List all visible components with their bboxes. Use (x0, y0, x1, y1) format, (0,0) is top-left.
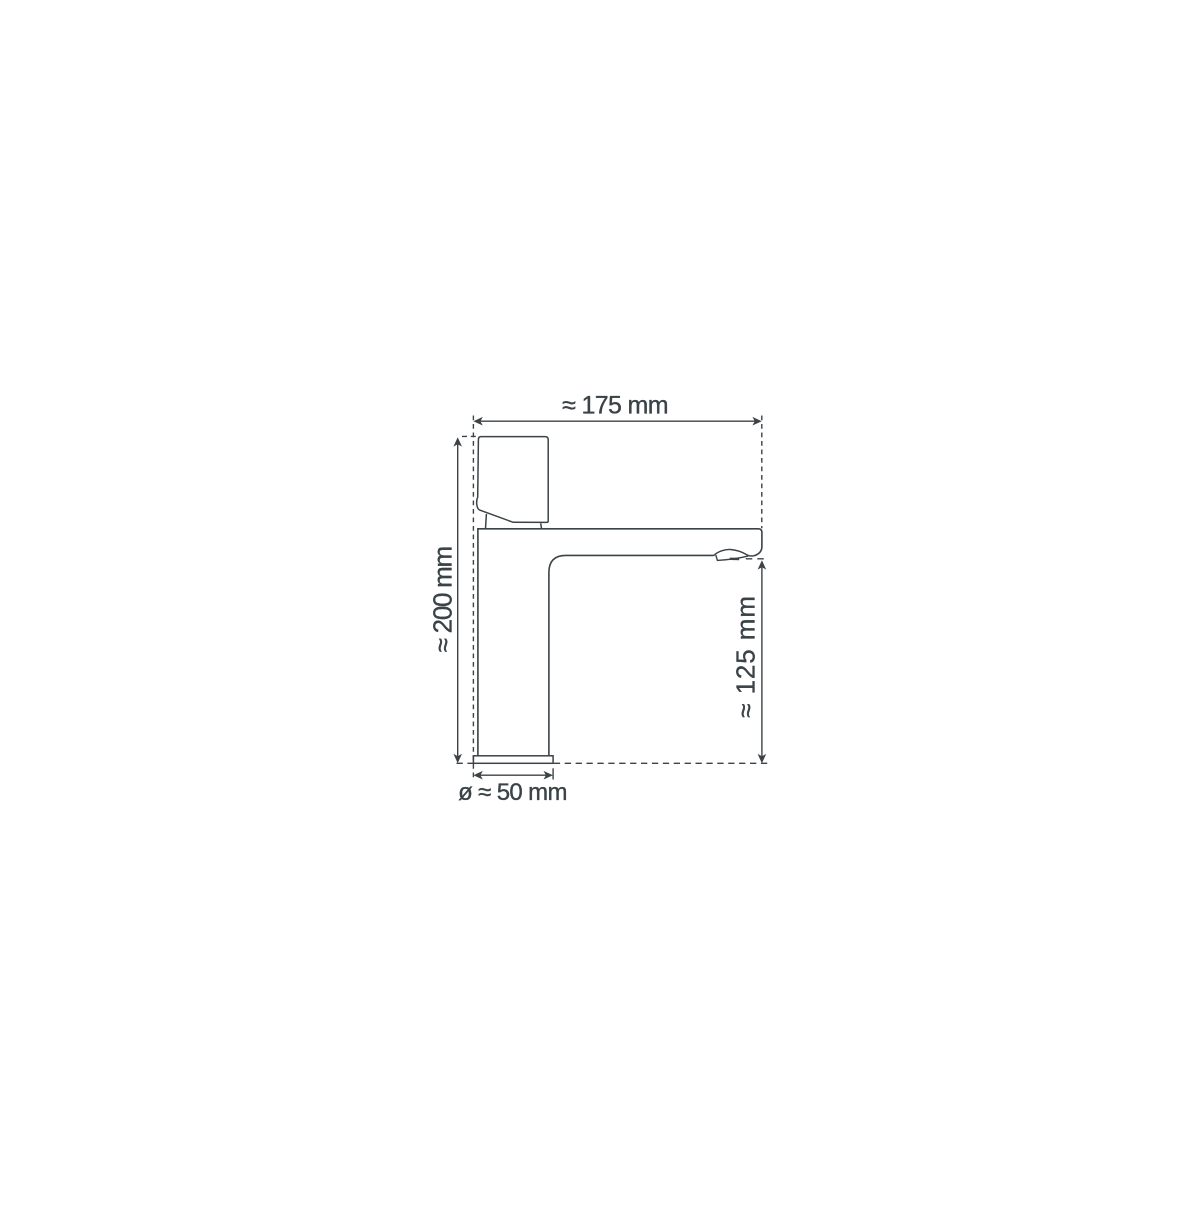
svg-text:ø ≈ 50 mm: ø ≈ 50 mm (458, 779, 567, 806)
svg-text:≈ 200 mm: ≈ 200 mm (427, 547, 457, 652)
svg-text:≈ 125 mm: ≈ 125 mm (730, 595, 760, 718)
svg-text:≈ 175 mm: ≈ 175 mm (562, 392, 668, 420)
